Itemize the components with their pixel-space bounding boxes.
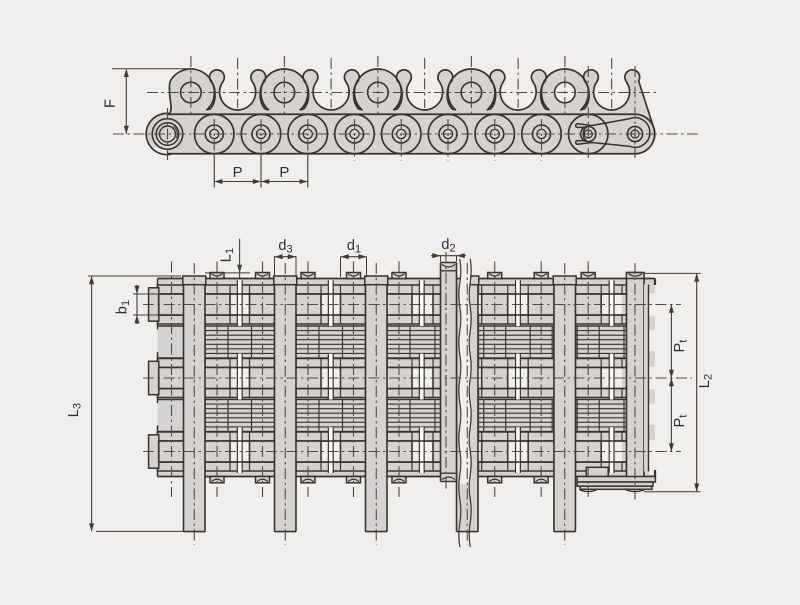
- svg-text:F: F: [102, 99, 119, 108]
- svg-text:P: P: [233, 164, 243, 181]
- svg-text:P: P: [279, 164, 289, 181]
